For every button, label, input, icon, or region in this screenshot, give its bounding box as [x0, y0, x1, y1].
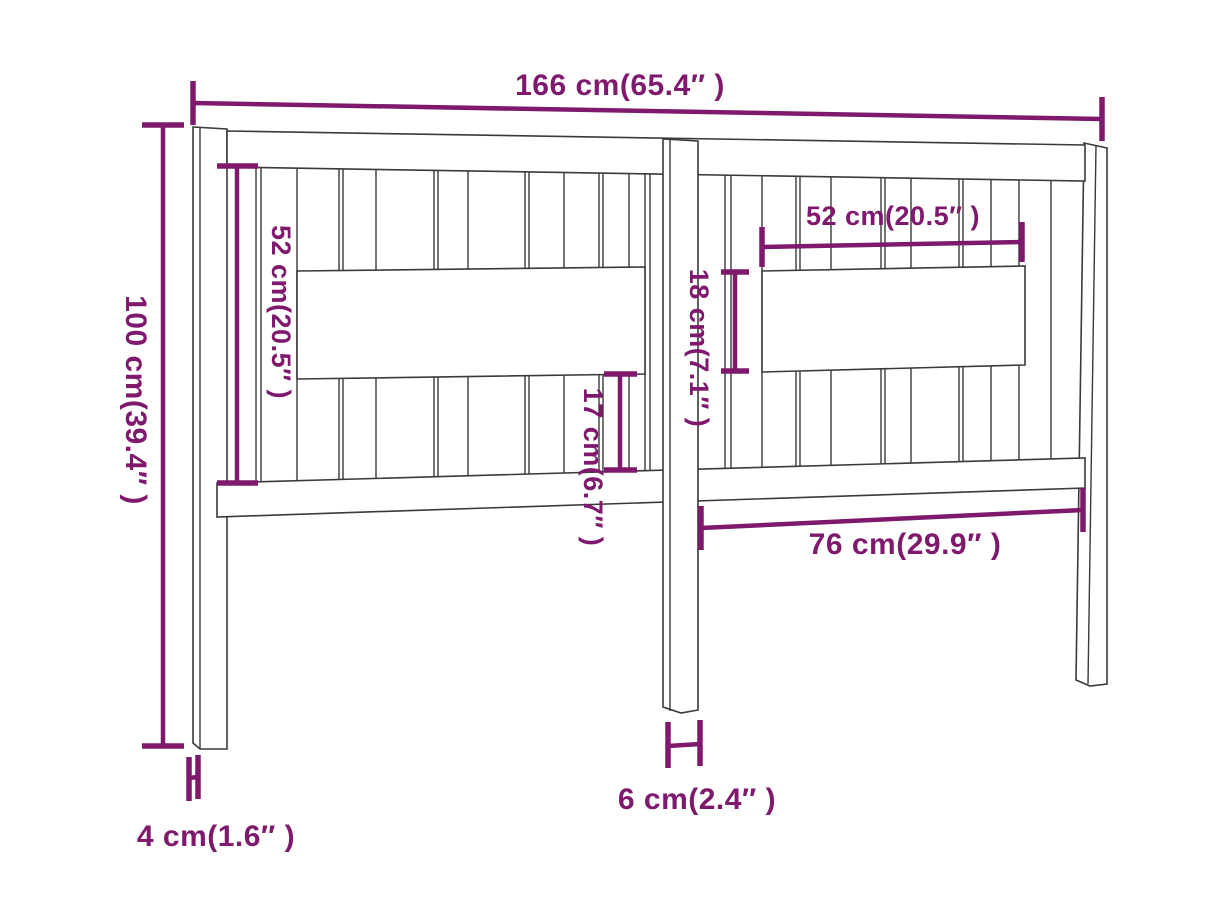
dimension-diagram: 166 cm(65.4″ ) 100 cm(39.4″ ) 52 cm(20.5…: [0, 0, 1229, 921]
right-post: [1076, 143, 1107, 686]
dim-leg-thickness-label: 4 cm(1.6″ ): [137, 820, 295, 853]
left-middle-panel: [297, 267, 645, 379]
dim-leg-thickness: 4 cm(1.6″ ): [137, 755, 295, 853]
left-post: [193, 127, 227, 749]
right-middle-panel: [762, 266, 1025, 372]
bottom-rail: [217, 458, 1085, 517]
top-rail: [227, 131, 1085, 181]
dim-overall-width-label: 166 cm(65.4″ ): [515, 69, 725, 102]
dim-left-lower-height: 17 cm(6.7″ ): [578, 374, 637, 546]
headboard-diagram-svg: 166 cm(65.4″ ) 100 cm(39.4″ ) 52 cm(20.5…: [0, 0, 1229, 921]
dim-right-panel-height-label: 18 cm(7.1″ ): [684, 269, 714, 428]
dim-overall-width: 166 cm(65.4″ ): [193, 69, 1102, 141]
dim-right-panel-width: 52 cm(20.5″ ): [762, 201, 1022, 267]
dim-left-opening-height-label: 52 cm(20.5″ ): [266, 225, 296, 399]
dim-lower-rail-span-label: 76 cm(29.9″ ): [809, 528, 1002, 561]
dim-right-panel-width-label: 52 cm(20.5″ ): [806, 201, 980, 231]
dim-right-panel-height: 18 cm(7.1″ ): [684, 269, 749, 428]
dim-center-leg-width: 6 cm(2.4″ ): [618, 720, 776, 816]
dim-overall-height-label: 100 cm(39.4″ ): [119, 295, 152, 505]
dim-left-lower-height-label: 17 cm(6.7″ ): [578, 388, 608, 547]
dim-center-leg-width-label: 6 cm(2.4″ ): [618, 783, 776, 816]
dim-overall-height: 100 cm(39.4″ ): [119, 125, 184, 746]
